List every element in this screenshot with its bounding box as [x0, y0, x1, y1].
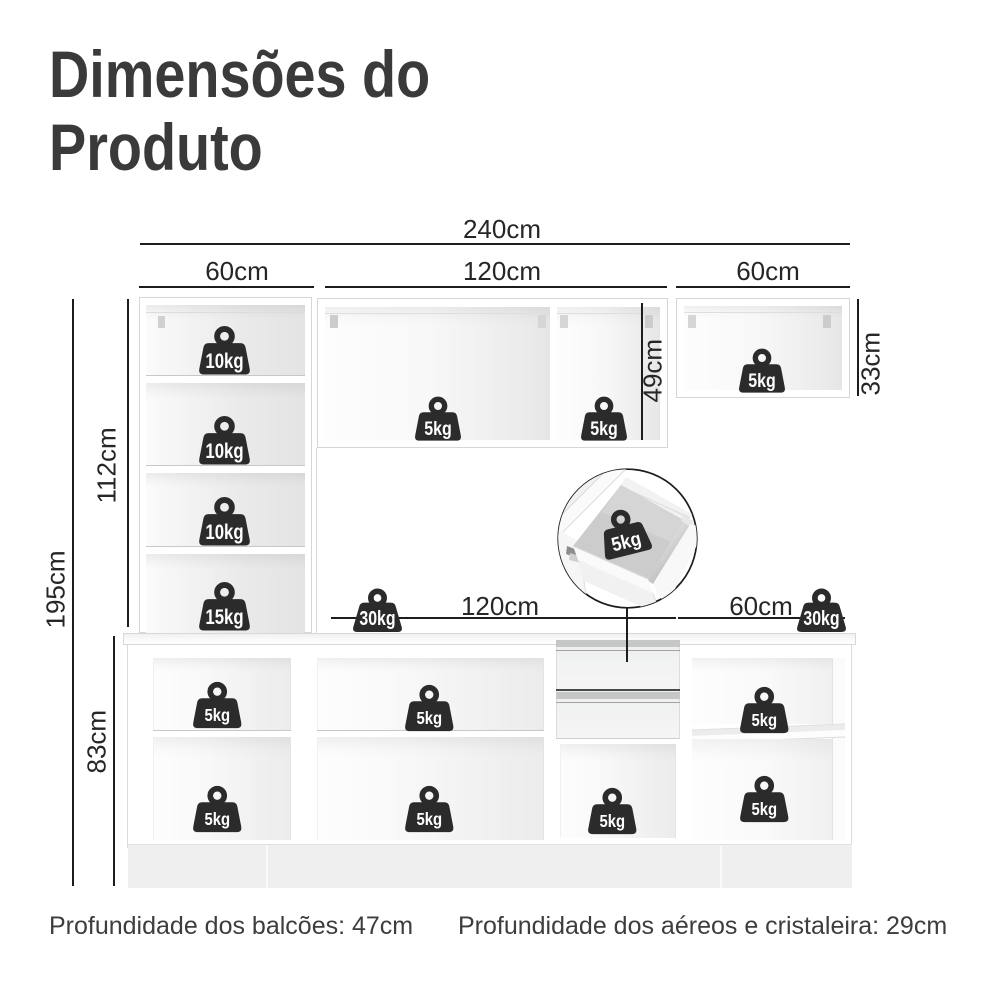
svg-text:30kg: 30kg: [803, 608, 839, 630]
svg-text:30kg: 30kg: [359, 608, 395, 630]
svg-text:5kg: 5kg: [748, 371, 776, 392]
svg-text:5kg: 5kg: [416, 809, 442, 829]
svg-text:15kg: 15kg: [205, 604, 243, 629]
svg-text:5kg: 5kg: [599, 811, 625, 831]
svg-text:5kg: 5kg: [204, 705, 230, 725]
svg-text:5kg: 5kg: [590, 419, 618, 440]
svg-text:5kg: 5kg: [751, 710, 777, 730]
svg-text:10kg: 10kg: [205, 348, 243, 373]
svg-text:5kg: 5kg: [416, 708, 442, 728]
svg-text:10kg: 10kg: [205, 438, 243, 463]
svg-text:5kg: 5kg: [424, 419, 452, 440]
svg-text:5kg: 5kg: [204, 809, 230, 829]
svg-text:5kg: 5kg: [751, 799, 777, 819]
svg-text:10kg: 10kg: [205, 519, 243, 544]
